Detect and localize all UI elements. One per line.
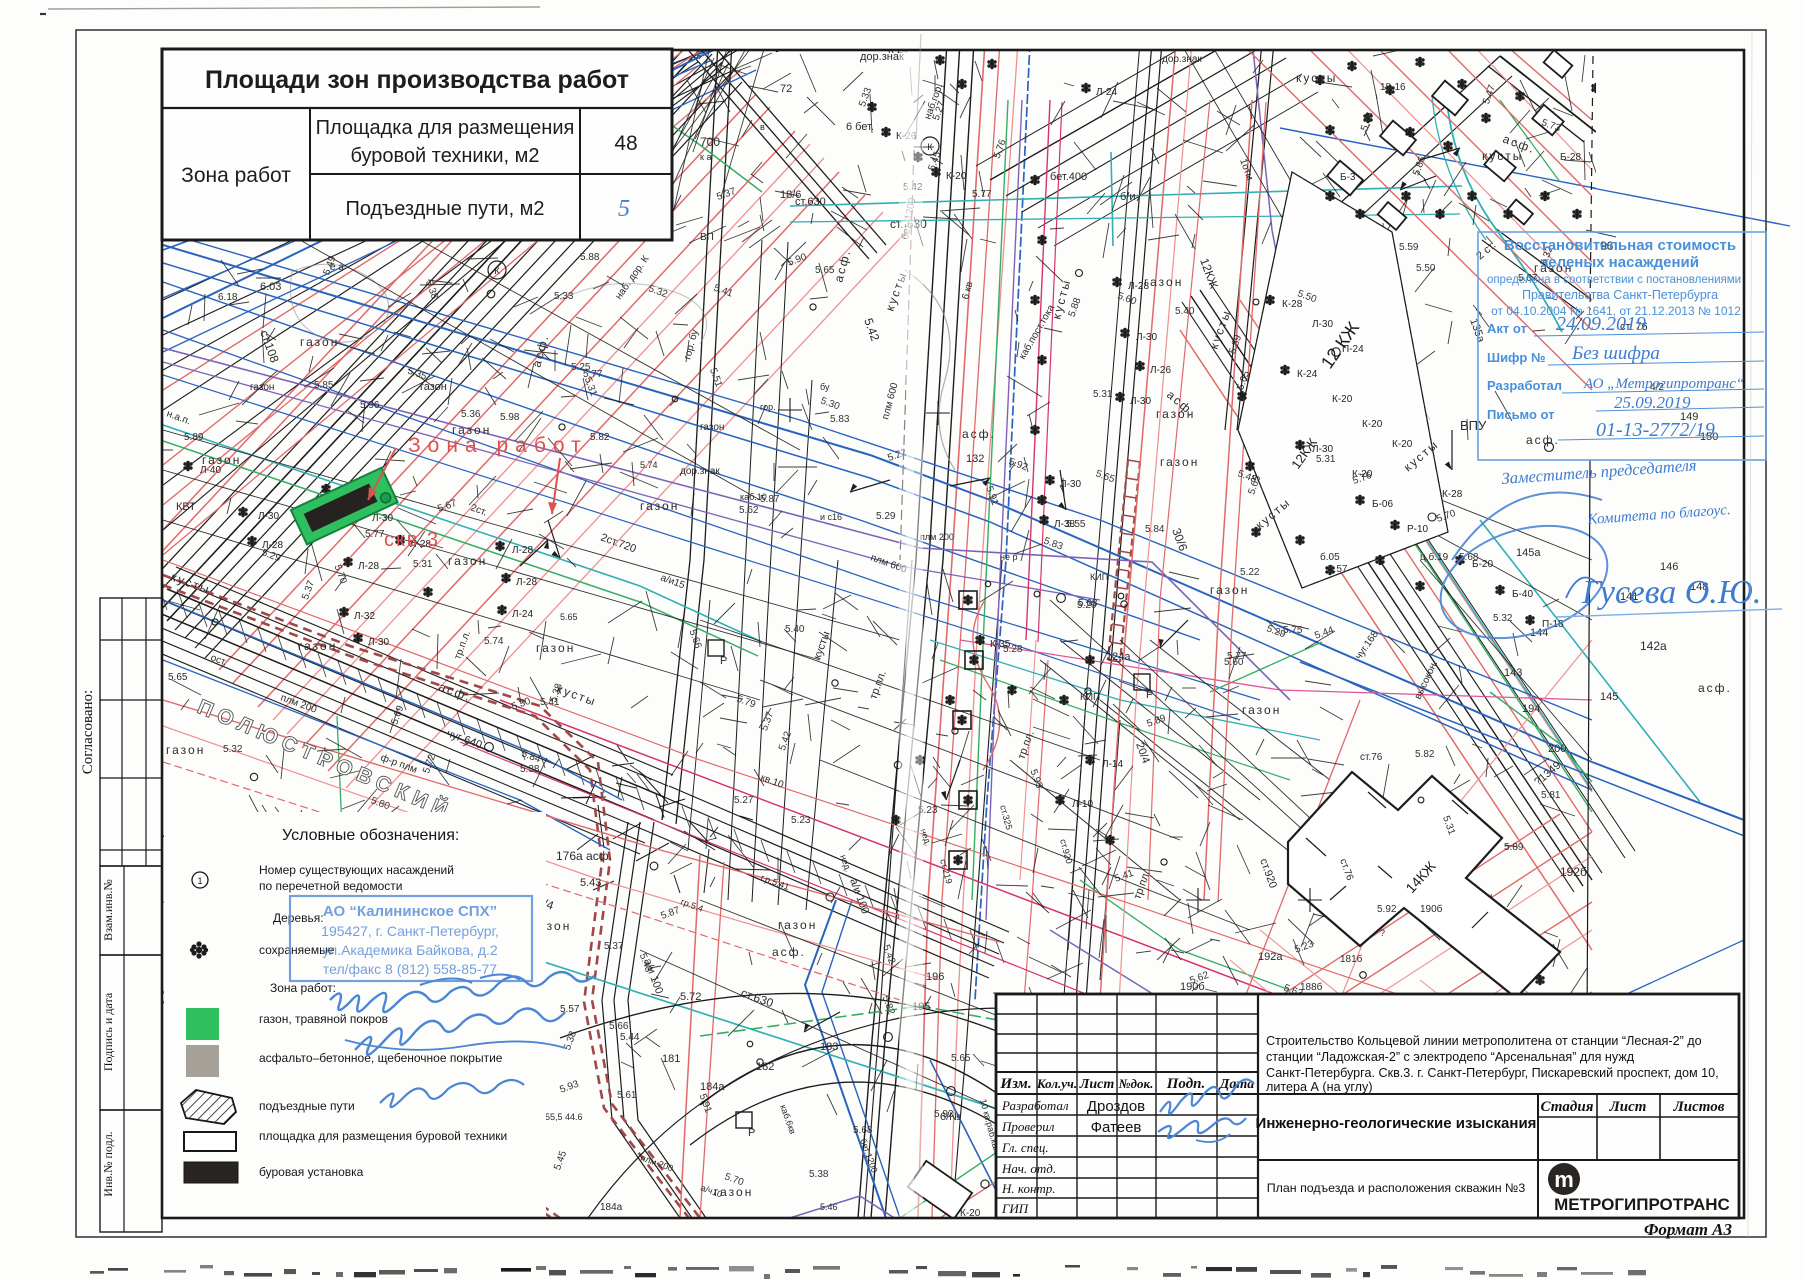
svg-text:Л-30: Л-30 <box>1136 332 1157 343</box>
svg-text:буровая установка: буровая установка <box>259 1165 364 1179</box>
svg-text:5.81: 5.81 <box>1541 790 1561 801</box>
svg-text:Л-26: Л-26 <box>1150 365 1171 376</box>
svg-text:5.62: 5.62 <box>739 505 759 516</box>
svg-text:5.65: 5.65 <box>951 1053 971 1064</box>
svg-text:5.55: 5.55 <box>1066 519 1086 530</box>
svg-text:АО “Калининское СПХ”: АО “Калининское СПХ” <box>323 903 497 920</box>
svg-text:газон: газон <box>1242 703 1281 717</box>
svg-text:буровой техники, м2: буровой техники, м2 <box>350 145 539 167</box>
svg-text:192б: 192б <box>1560 865 1587 879</box>
svg-text:Согласовано:: Согласовано: <box>80 690 96 774</box>
svg-text:182: 182 <box>756 1061 774 1073</box>
svg-text:Л-30: Л-30 <box>258 511 279 522</box>
svg-text:190б: 190б <box>1180 981 1205 993</box>
svg-text:КИП: КИП <box>1090 572 1108 582</box>
svg-text:Б-40: Б-40 <box>1512 589 1533 600</box>
svg-text:5.65: 5.65 <box>168 672 188 683</box>
svg-text:Зона работ:: Зона работ: <box>270 981 336 995</box>
svg-text:5.89: 5.89 <box>1504 842 1524 853</box>
svg-text:газон: газон <box>202 453 241 467</box>
svg-text:асф.: асф. <box>962 427 996 441</box>
svg-text:181б: 181б <box>1340 953 1363 965</box>
svg-text:m: m <box>1554 1167 1574 1192</box>
svg-text:5.28: 5.28 <box>1003 644 1023 655</box>
svg-text:5.40: 5.40 <box>785 624 805 635</box>
svg-text:5: 5 <box>618 196 630 222</box>
svg-text:Фатеев: Фатеев <box>1091 1119 1142 1136</box>
svg-text:48: 48 <box>614 132 637 155</box>
svg-text:6.03: 6.03 <box>260 281 281 293</box>
svg-text:700: 700 <box>700 135 720 149</box>
svg-text:газон: газон <box>778 918 817 932</box>
svg-text:АО „Метрогипротранс“: АО „Метрогипротранс“ <box>1583 376 1744 392</box>
svg-text:24.09.2019: 24.09.2019 <box>1556 313 1646 335</box>
svg-text:Изм.: Изм. <box>999 1076 1031 1092</box>
svg-text:5.57: 5.57 <box>1328 564 1348 575</box>
svg-text:142а: 142а <box>1640 639 1667 653</box>
svg-text:5.31: 5.31 <box>1316 454 1336 465</box>
svg-text:КВТ: КВТ <box>176 501 196 513</box>
svg-text:ул.Академика Байкова, д.2: ул.Академика Байкова, д.2 <box>322 942 498 958</box>
svg-text:Л-24: Л-24 <box>1096 87 1117 98</box>
svg-text:5.98: 5.98 <box>500 412 520 423</box>
svg-text:площадка для размещения бурово: площадка для размещения буровой техники <box>259 1129 507 1143</box>
svg-text:№док.: №док. <box>1118 1076 1154 1091</box>
svg-text:Л-10: Л-10 <box>1072 799 1093 810</box>
svg-text:146: 146 <box>1660 561 1678 573</box>
svg-text:5.63: 5.63 <box>1078 598 1098 609</box>
svg-text:Правительства Санкт-Петербурга: Правительства Санкт-Петербурга <box>1522 288 1718 302</box>
svg-text:124а: 124а <box>1106 651 1131 663</box>
svg-text:200: 200 <box>1548 743 1566 755</box>
svg-text:дор.знак: дор.знак <box>1162 54 1202 65</box>
svg-text:газон: газон <box>298 639 337 653</box>
svg-text:Акт от: Акт от <box>1487 321 1527 336</box>
svg-text:5.50: 5.50 <box>1416 263 1436 274</box>
svg-text:Л-24: Л-24 <box>512 609 533 620</box>
svg-text:Разработал: Разработал <box>1001 1098 1069 1113</box>
svg-text:5.74: 5.74 <box>640 460 658 470</box>
svg-text:определена в соответствии с по: определена в соответствии с постановлени… <box>1487 274 1741 286</box>
svg-text:ст.76: ст.76 <box>1360 752 1383 763</box>
svg-text:Строительство Кольцевой линии: Строительство Кольцевой линии метрополит… <box>1266 1034 1702 1048</box>
svg-text:145: 145 <box>1600 691 1618 703</box>
svg-text:Н. контр.: Н. контр. <box>1001 1181 1056 1196</box>
svg-text:в: в <box>760 122 765 132</box>
svg-text:5.82: 5.82 <box>590 432 610 443</box>
svg-text:Инженерно-геологические изыска: Инженерно-геологические изыскания <box>1256 1115 1537 1132</box>
svg-text:5.96: 5.96 <box>360 400 380 411</box>
svg-text:195427, г. Санкт-Петербург,: 195427, г. Санкт-Петербург, <box>321 923 499 939</box>
svg-text:5.38: 5.38 <box>520 764 540 775</box>
svg-text:5.88: 5.88 <box>580 252 600 263</box>
svg-text:Взам.инв.№: Взам.инв.№ <box>101 879 115 941</box>
svg-text:газон: газон <box>448 554 487 568</box>
svg-text:Без шифра: Без шифра <box>1571 343 1660 364</box>
svg-text:б.05: б.05 <box>1320 551 1340 563</box>
svg-text:К: К <box>494 266 500 276</box>
svg-text:5.85: 5.85 <box>314 380 334 391</box>
svg-text:Площадка для размещения: Площадка для размещения <box>316 117 575 139</box>
svg-text:газон: газон <box>420 381 447 393</box>
svg-text:к а: к а <box>700 152 711 162</box>
svg-text:скв.3: скв.3 <box>384 529 440 551</box>
svg-text:Р-10: Р-10 <box>1407 524 1429 535</box>
svg-text:132: 132 <box>966 453 984 465</box>
svg-text:Условные обозначения:: Условные обозначения: <box>282 827 459 844</box>
svg-text:литера А (на углу): литера А (на углу) <box>1266 1080 1373 1094</box>
svg-text:асф.: асф. <box>1526 433 1560 447</box>
svg-text:плм 200: плм 200 <box>920 532 954 542</box>
svg-text:176а асф.: 176а асф. <box>556 849 612 863</box>
svg-text:бу: бу <box>820 382 830 392</box>
svg-text:5.32: 5.32 <box>223 744 243 755</box>
svg-text:Л-28: Л-28 <box>358 561 379 572</box>
svg-text:Номер существующих насаждений: Номер существующих насаждений <box>259 863 454 877</box>
svg-text:196: 196 <box>926 971 944 983</box>
svg-text:5.33: 5.33 <box>554 291 574 302</box>
svg-text:Восстановительная стоимость: Восстановительная стоимость <box>1504 237 1736 254</box>
svg-text:ГИП: ГИП <box>1001 1201 1030 1216</box>
svg-text:ВП: ВП <box>700 232 714 243</box>
svg-text:тел/факс 8 (812) 558-85-77: тел/факс 8 (812) 558-85-77 <box>323 961 497 977</box>
svg-text:5.77: 5.77 <box>972 189 992 200</box>
svg-text:Проверил: Проверил <box>1001 1119 1055 1134</box>
svg-text:дор.знак: дор.знак <box>860 51 904 63</box>
svg-text:К-20: К-20 <box>1362 419 1383 430</box>
svg-text:Подп.: Подп. <box>1166 1076 1206 1092</box>
svg-text:5.46: 5.46 <box>820 1202 838 1212</box>
svg-text:газон: газон <box>536 641 575 655</box>
svg-text:5.89: 5.89 <box>184 432 204 443</box>
svg-text:5.38: 5.38 <box>809 1169 829 1180</box>
svg-text:Шифр №: Шифр № <box>1487 350 1545 365</box>
svg-text:194: 194 <box>1522 703 1540 715</box>
svg-text:5.37: 5.37 <box>604 941 624 952</box>
svg-text:станции “Ладожская-2” с электр: станции “Ладожская-2” с электродепо “Арс… <box>1266 1050 1635 1064</box>
svg-text:не р: не р <box>1000 552 1017 562</box>
svg-text:190б: 190б <box>1420 903 1443 915</box>
svg-text:5.77: 5.77 <box>365 529 385 540</box>
svg-text:143: 143 <box>1504 667 1522 679</box>
svg-text:Подпись и дата: Подпись и дата <box>101 992 115 1071</box>
svg-text:5.59: 5.59 <box>1399 242 1419 253</box>
svg-text:асфальто–бетонное, щебеночное: асфальто–бетонное, щебеночное покрытие <box>259 1051 503 1065</box>
svg-text:Листов: Листов <box>1673 1099 1725 1115</box>
svg-text:План подъезда и расположения с: План подъезда и расположения скважин №3 <box>1267 1181 1526 1195</box>
svg-text:6 бет.: 6 бет. <box>846 121 874 133</box>
svg-text:Зона работ: Зона работ <box>181 164 291 187</box>
svg-text:1: 1 <box>197 876 202 886</box>
svg-text:Подъездные пути, м2: Подъездные пути, м2 <box>345 198 544 220</box>
svg-text:?: ? <box>1380 928 1385 938</box>
svg-text:5.25: 5.25 <box>571 362 591 373</box>
svg-text:Лист: Лист <box>1609 1099 1647 1115</box>
svg-text:газон: газон <box>1210 583 1249 597</box>
svg-text:5.82: 5.82 <box>1415 749 1435 760</box>
svg-text:Л-30: Л-30 <box>368 637 389 648</box>
svg-text:5.43: 5.43 <box>580 877 601 889</box>
svg-text:Р: Р <box>1146 689 1153 701</box>
svg-text:ё а: ё а <box>330 262 344 273</box>
svg-text:5.22: 5.22 <box>1240 567 1260 578</box>
svg-text:К-28: К-28 <box>1282 299 1303 310</box>
svg-text:газон: газон <box>1144 275 1183 289</box>
svg-text:Гл. спец.: Гл. спец. <box>1001 1140 1049 1155</box>
svg-text:Л-32: Л-32 <box>354 611 375 622</box>
svg-text:кусты: кусты <box>1482 149 1523 163</box>
svg-text:5.40: 5.40 <box>1175 306 1195 317</box>
svg-text:181: 181 <box>662 1053 680 1065</box>
svg-text:5.92: 5.92 <box>1377 904 1397 915</box>
svg-text:Дроздов: Дроздов <box>1087 1098 1145 1115</box>
svg-text:188б: 188б <box>1300 981 1323 993</box>
svg-text:5.44: 5.44 <box>620 1032 640 1043</box>
svg-text:ВПУ: ВПУ <box>1460 418 1487 433</box>
svg-text:5.83: 5.83 <box>830 414 850 425</box>
svg-text:Л-28: Л-28 <box>516 577 537 588</box>
svg-text:Нач. отд.: Нач. отд. <box>1001 1161 1056 1176</box>
svg-text:П-24: П-24 <box>1342 344 1364 355</box>
svg-text:Письмо от: Письмо от <box>1487 407 1555 422</box>
svg-text:5.72: 5.72 <box>680 991 701 1003</box>
svg-text:5.23: 5.23 <box>791 815 811 826</box>
svg-text:газон: газон <box>700 422 724 433</box>
svg-text:Б-3: Б-3 <box>1340 172 1356 183</box>
svg-text:газон: газон <box>166 743 205 757</box>
svg-text:К-20: К-20 <box>1332 394 1353 405</box>
svg-text:газон: газон <box>300 335 339 349</box>
svg-text:184а: 184а <box>600 1202 623 1213</box>
svg-text:и с16: и с16 <box>820 512 842 522</box>
svg-text:183: 183 <box>820 1041 838 1053</box>
svg-text:5.65: 5.65 <box>560 612 578 622</box>
svg-text:гор.: гор. <box>760 402 776 412</box>
svg-text:газон: газон <box>250 382 274 393</box>
svg-text:5.61: 5.61 <box>617 1090 637 1101</box>
svg-text:5.36: 5.36 <box>461 409 481 420</box>
svg-text:5.66: 5.66 <box>609 1021 629 1032</box>
svg-text:Зона работ: Зона работ <box>408 434 588 457</box>
svg-text:по перечетной ведомости: по перечетной ведомости <box>259 879 402 893</box>
svg-text:18/6: 18/6 <box>780 189 801 201</box>
svg-text:Кол.уч.: Кол.уч. <box>1036 1076 1077 1091</box>
svg-text:К-28: К-28 <box>1442 489 1463 500</box>
svg-text:б/и: б/и <box>1120 191 1136 203</box>
svg-text:Разработал: Разработал <box>1487 378 1562 393</box>
svg-text:Инв.№ подл.: Инв.№ подл. <box>101 1131 115 1196</box>
svg-text:Деревья:: Деревья: <box>273 911 324 925</box>
svg-text:155,5 44.6: 155,5 44.6 <box>540 1112 583 1122</box>
svg-text:192а: 192а <box>1258 951 1283 963</box>
svg-text:5.29: 5.29 <box>876 511 896 522</box>
svg-text:К: К <box>927 142 933 152</box>
svg-text:5.77: 5.77 <box>1227 651 1247 662</box>
svg-text:газон, травяной покров: газон, травяной покров <box>259 1012 388 1026</box>
svg-text:Лист: Лист <box>1079 1077 1115 1092</box>
svg-text:72: 72 <box>780 83 792 95</box>
svg-text:5.27: 5.27 <box>734 795 754 806</box>
svg-text:6.18: 6.18 <box>218 292 238 303</box>
svg-text:каб.10: каб.10 <box>740 492 767 502</box>
svg-text:Санкт-Петербурга. Скв.3. г. Са: Санкт-Петербурга. Скв.3. г. Санкт-Петерб… <box>1266 1066 1719 1080</box>
svg-text:18-16: 18-16 <box>1380 82 1406 93</box>
svg-text:Л-30: Л-30 <box>1130 396 1151 407</box>
svg-text:К-20: К-20 <box>1392 439 1413 450</box>
svg-text:Л-28: Л-28 <box>512 545 533 556</box>
svg-text:Р: Р <box>748 1127 755 1139</box>
svg-text:Л-30: Л-30 <box>372 513 393 524</box>
svg-text:Стадия: Стадия <box>1541 1099 1594 1115</box>
svg-text:Б-28: Б-28 <box>1560 152 1581 163</box>
svg-text:184а: 184а <box>700 1081 725 1093</box>
svg-text:5.31: 5.31 <box>1093 389 1113 400</box>
svg-text:5.31: 5.31 <box>413 559 433 570</box>
svg-text:ц.б.19: ц.б.19 <box>1420 551 1449 563</box>
svg-text:асф.: асф. <box>772 945 806 959</box>
svg-text:дор.знак: дор.знак <box>680 466 720 477</box>
svg-text:5.75: 5.75 <box>1283 625 1303 636</box>
svg-text:5.74: 5.74 <box>484 636 504 647</box>
svg-text:К-20: К-20 <box>946 171 967 182</box>
svg-text:6/№: 6/№ <box>940 1111 961 1123</box>
svg-text:145а: 145а <box>1516 547 1541 559</box>
svg-text:5.32: 5.32 <box>1493 613 1513 624</box>
svg-text:зеленых насаждений: зеленых насаждений <box>1541 254 1699 271</box>
svg-text:бет.400: бет.400 <box>1050 171 1087 183</box>
svg-text:Р: Р <box>720 655 727 667</box>
svg-text:К-24: К-24 <box>1297 369 1318 380</box>
svg-text:подъездные пути: подъездные пути <box>259 1099 355 1113</box>
svg-text:Л-30: Л-30 <box>1312 319 1333 330</box>
svg-text:5.68: 5.68 <box>853 1125 873 1136</box>
svg-text:МЕТРОГИПРОТРАНС: МЕТРОГИПРОТРАНС <box>1554 1195 1730 1214</box>
svg-text:газон: газон <box>640 499 679 513</box>
svg-text:5.84: 5.84 <box>1145 524 1165 535</box>
svg-text:Формат А3: Формат А3 <box>1644 1220 1733 1239</box>
svg-text:Площади зон производства работ: Площади зон производства работ <box>205 66 629 94</box>
svg-text:газон: газон <box>1160 455 1199 469</box>
svg-text:кусты: кусты <box>1296 71 1337 85</box>
svg-text:асф.: асф. <box>1698 681 1732 695</box>
svg-text:Гусева О.Ю.: Гусева О.Ю. <box>1581 574 1761 611</box>
svg-text:Б-06: Б-06 <box>1372 499 1393 510</box>
svg-text:Л-14: Л-14 <box>1102 759 1123 770</box>
